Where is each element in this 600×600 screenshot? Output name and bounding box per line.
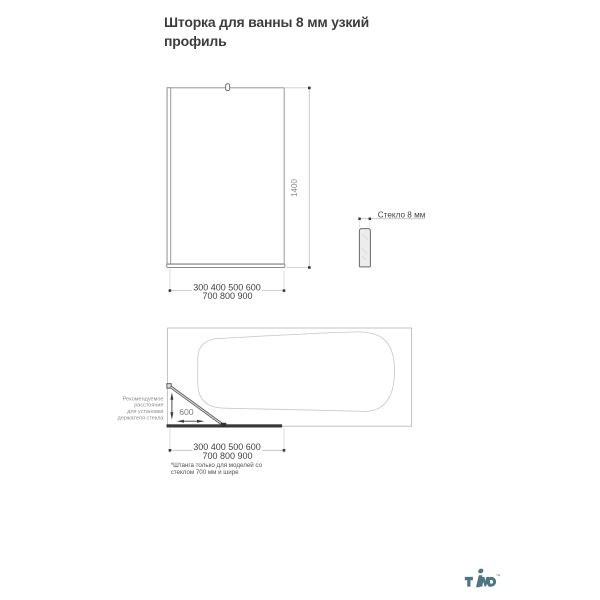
svg-text:™: ™ xyxy=(496,573,501,578)
svg-text:Рекомендуемое: Рекомендуемое xyxy=(123,396,164,402)
svg-text:700 800 900: 700 800 900 xyxy=(202,291,252,301)
svg-text:стеклом 700 мм и шире: стеклом 700 мм и шире xyxy=(171,469,239,476)
svg-text:держателя стекла: держателя стекла xyxy=(118,415,165,421)
svg-text:расстояние: расстояние xyxy=(134,403,163,409)
svg-text:для установки: для установки xyxy=(127,409,163,415)
svg-text:700 800 900: 700 800 900 xyxy=(202,451,252,461)
svg-text:*Штанга только для моделей со: *Штанга только для моделей со xyxy=(171,462,263,469)
svg-text:600: 600 xyxy=(179,407,194,417)
svg-text:Стекло 8 мм: Стекло 8 мм xyxy=(378,210,426,219)
svg-text:1400: 1400 xyxy=(290,179,299,197)
